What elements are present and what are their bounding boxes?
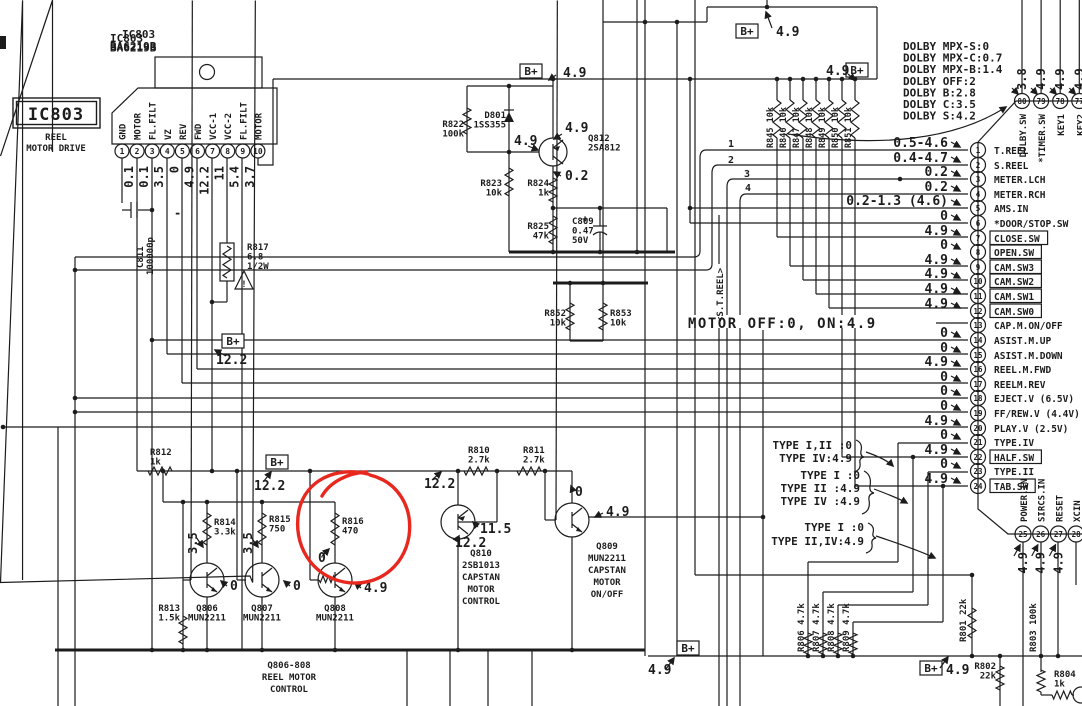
component-label: 1.5k: [158, 614, 180, 624]
ic-pin-number: 10: [973, 277, 983, 286]
junction-dot: [551, 206, 556, 211]
ic-pin-label: METER.LCH: [994, 175, 1046, 186]
pin-arrow: [951, 171, 960, 176]
component-label: Q809: [596, 542, 618, 552]
junction-dot: [788, 77, 793, 82]
ic-pin-number: 19: [973, 409, 983, 418]
junction-dot: [570, 648, 575, 653]
resistor-bank-label: R851 10k: [844, 107, 854, 148]
resistor-bank-label: R848 10k: [805, 107, 815, 148]
ic-pin-number: 15: [973, 351, 982, 360]
pin-voltage: 0: [940, 209, 948, 224]
transistor-pnp: [441, 505, 475, 539]
voltage-annotation: MOTOR OFF:0, ON:4.9: [688, 316, 877, 332]
voltage-annotation: 3.5: [186, 532, 200, 554]
ic-pin-label: REEL.M.FWD: [994, 365, 1051, 376]
junction-dot: [836, 654, 841, 659]
junction-dot: [456, 648, 461, 653]
bplus-label: B+: [270, 456, 284, 469]
resistor-bank-label: R845 10k: [766, 107, 776, 148]
ic803-pin-voltage: 0: [167, 166, 181, 173]
ic-pin-label: POWER.IN: [1020, 479, 1030, 522]
ic803-pin-name: REV: [179, 123, 189, 140]
ic803-pin-name: GND: [119, 123, 129, 140]
ic-pin-number: 9: [976, 263, 981, 272]
pin-voltage: 4.9: [1053, 68, 1067, 90]
ic-pin-number: 26: [1036, 530, 1046, 539]
component-label: CAPSTAN: [588, 566, 626, 576]
ic-pin-number: 24: [973, 482, 983, 491]
bplus-label: B+: [524, 65, 538, 78]
warning-mark: !: [241, 280, 246, 290]
voltage-annotation: TYPE I :0: [804, 521, 864, 534]
ic-pin-number: 23: [973, 467, 983, 476]
ic803-pin-voltage: 3.5: [152, 166, 166, 188]
ic-pin-number: 25: [1018, 530, 1027, 539]
junction-dot: [970, 654, 975, 659]
junction-dot: [210, 469, 215, 474]
ic803-pin-voltage: 0.1: [137, 166, 151, 188]
resistor: [1037, 670, 1045, 692]
pin-arrow: [951, 142, 960, 147]
component-label: MOTOR: [593, 578, 621, 588]
junction-dot: [970, 573, 975, 578]
ic-pin-label: REELM.REV: [994, 380, 1046, 391]
component-label: MUN2211: [243, 614, 281, 624]
schematic-canvas: IC803 BA6219B IC803 REEL MOTOR DRIVE +! …: [0, 0, 1082, 706]
ic803-pin-number: 10: [253, 147, 263, 156]
component-label: R812: [150, 448, 172, 458]
ic-pin-number: 17: [973, 380, 982, 389]
value-arrow: [284, 581, 290, 586]
pin-voltage: 4.9: [925, 282, 948, 297]
pin-arrow: [951, 244, 960, 249]
junction-dot: [821, 654, 826, 659]
ic803-box-ref: IC803: [28, 105, 84, 125]
pin-voltage: 4.9: [1034, 68, 1048, 90]
ic-pin-number: 21: [973, 438, 983, 447]
pin-arrow: [951, 376, 960, 381]
pin-voltage: 0: [940, 399, 948, 414]
ic803-function-1: REEL: [45, 133, 67, 143]
transistor-partial: [1073, 687, 1082, 703]
junction-dot: [761, 515, 766, 520]
bplus-label: B+: [226, 335, 240, 348]
voltage-annotation: 0: [293, 579, 301, 594]
junction-dot: [495, 469, 500, 474]
junction-dot: [598, 250, 603, 255]
ic-pin-label: KEY1: [1057, 114, 1067, 136]
ic-pin-label: DOLBY.SW: [1019, 113, 1029, 157]
junction-dot: [73, 268, 78, 273]
resistor: [331, 513, 339, 545]
component-label: R808 4.7k: [827, 603, 837, 652]
junction-dot: [507, 150, 512, 155]
voltage-annotation: 4.9: [648, 663, 671, 678]
voltage-annotation: 4.9: [565, 121, 588, 136]
pin-voltage: 4.9: [925, 472, 948, 487]
component-label: 10k: [486, 189, 503, 199]
value-arrow: [554, 134, 562, 139]
ic-pin-number: 14: [973, 336, 983, 345]
ic-pin-label: CAP.M.ON/OFF: [994, 321, 1063, 332]
component-label: R804: [1054, 670, 1076, 680]
voltage-annotation: 0: [575, 485, 583, 500]
component-label: 6.8: [247, 253, 263, 263]
ic-pin-number: 27: [1054, 530, 1063, 539]
pin-arrow: [951, 434, 960, 439]
pin-voltage: 4.9: [925, 224, 948, 239]
pin-arrow: [951, 230, 960, 235]
ic-pin-label: OPEN.SW: [994, 248, 1034, 259]
component-label: R813: [158, 604, 180, 614]
dolby-mode-line: DOLBY S:4.2: [903, 110, 976, 123]
ic803-pin-name: MOTOR: [134, 112, 144, 140]
junction-dot: [150, 648, 155, 653]
ic-pin-label: CAM.SW0: [994, 307, 1034, 318]
ic-pin-number: 80: [1017, 97, 1027, 106]
voltage-annotation: 4.9: [826, 64, 849, 79]
junction-dot: [568, 281, 573, 286]
resistor: [599, 303, 607, 330]
ic803-pin-number: 2: [135, 147, 140, 156]
ic-pin-label: SIRCS.IN: [1038, 479, 1048, 522]
component-label: R823: [480, 179, 502, 189]
pin-voltage: 0: [940, 326, 948, 341]
ic-pin-number: 13: [973, 321, 983, 330]
component-label: 0.47: [572, 227, 594, 237]
voltage-annotation: TYPE I,II :0: [773, 439, 852, 452]
voltage-annotation: 0: [318, 551, 326, 566]
junction-dot: [998, 654, 1003, 659]
component-label: C811: [136, 246, 146, 268]
ic-pin-label: *DOOR/STOP.SW: [994, 219, 1069, 230]
pin-arrow: [951, 463, 960, 468]
component-label: R825: [527, 222, 549, 232]
junction-dot: [643, 20, 648, 25]
component-label: MUN2211: [316, 614, 354, 624]
pin-voltage: 0: [940, 384, 948, 399]
resistor: [1052, 691, 1072, 699]
junction-dot: [210, 300, 215, 305]
component-label: 1SS355: [473, 121, 506, 131]
component-label: CONTROL: [462, 597, 501, 607]
pin-arrow: [951, 186, 960, 191]
pin-arrow: [951, 347, 960, 352]
bplus-label: B+: [850, 64, 864, 77]
junction-dot: [675, 20, 680, 25]
pin-arrow: [951, 200, 960, 205]
ic-pin-number: 78: [1056, 97, 1066, 106]
voltage-annotation: TYPE IV:4.9: [779, 452, 852, 465]
pin-arrow: [951, 390, 960, 395]
voltage-annotation: 4.9: [563, 66, 586, 81]
ic-pin-number: 79: [1037, 97, 1047, 106]
resistor-bank-label: R849 10k: [818, 107, 828, 148]
resistor: [258, 513, 266, 545]
ic-pin-number: 77: [1075, 97, 1082, 106]
voltage-annotation: -: [174, 206, 181, 220]
ic803-pin-number: 3: [150, 147, 155, 156]
component-label: 22k: [980, 672, 997, 682]
junction-dot: [814, 77, 819, 82]
ic-pin-number: 7: [976, 234, 981, 243]
junction-dot: [851, 654, 856, 659]
pin-arrow: [951, 361, 960, 366]
resistor: [463, 108, 471, 134]
junction-dot: [765, 5, 770, 10]
voltage-annotation: 4.9: [606, 505, 629, 520]
voltage-annotation: 4: [745, 183, 751, 194]
voltage-annotation: 12.2: [254, 479, 285, 494]
component-label: R803 100k: [1029, 603, 1039, 652]
ic-pin-number: 11: [973, 292, 983, 301]
resistor: [566, 303, 574, 330]
component-label: 2.7k: [468, 456, 490, 466]
voltage-annotation: 3: [744, 169, 750, 180]
transistor-pnp: [1, 0, 568, 166]
component-label: Q807: [251, 604, 273, 614]
component-label: ON/OFF: [591, 590, 624, 600]
junction-dot: [601, 281, 606, 286]
junction-dot: [1, 425, 6, 430]
ic803-function-2: MOTOR DRIVE: [26, 144, 86, 154]
junction-dot: [73, 410, 78, 415]
ic-pin-label: CLOSE.SW: [994, 234, 1040, 245]
component-label: D801: [484, 111, 506, 121]
voltage-annotation: 12.2: [455, 536, 486, 551]
voltage-annotation: 11.5: [480, 522, 511, 537]
pin-arrow: [951, 405, 960, 410]
pin-arrow: [951, 259, 960, 264]
component-label: Q812: [588, 134, 610, 144]
ic803-pin-name: VCC-1: [209, 113, 219, 140]
voltage-annotation: 2: [728, 155, 734, 166]
ic-pin-number: 4: [976, 190, 981, 199]
pin-voltage: 0: [940, 370, 948, 385]
component-label: R807 4.7k: [812, 603, 822, 652]
resistor: [549, 216, 557, 244]
resistor: [549, 178, 557, 202]
junction-dot: [911, 455, 916, 460]
ic-pin-label: EJECT.V (6.5V): [994, 394, 1074, 405]
junction-dot: [775, 77, 780, 82]
component-label: 100000p: [146, 236, 156, 275]
ic-pin-number: 1: [976, 146, 981, 155]
value-arrow: [766, 12, 772, 28]
pin-arrow: [951, 303, 960, 308]
ic-pin-number: 6: [976, 219, 981, 228]
voltage-annotation: TYPE II,IV:4.9: [771, 535, 864, 548]
junction-dot: [1056, 654, 1061, 659]
ic-pin-number: 20: [973, 424, 983, 433]
component-label: 1k: [1054, 680, 1065, 690]
ic-pin-label: XCIN: [1073, 500, 1082, 522]
resistor: [179, 616, 187, 644]
voltage-annotation: 0.2: [565, 169, 588, 184]
junction-dot: [73, 396, 78, 401]
ic803-pin-number: 5: [180, 147, 185, 156]
ic803-pin-number: 7: [210, 147, 215, 156]
ic-pin-number: 18: [973, 394, 983, 403]
component-label: MOTOR: [467, 585, 495, 595]
pin-voltage: 0: [940, 238, 948, 253]
resistor: [464, 467, 488, 475]
ic-pin-number: 12: [973, 307, 982, 316]
pin-arrow: [951, 332, 960, 337]
resistor: [505, 168, 513, 196]
pin-voltage: 0.5-4.6: [893, 136, 948, 151]
resistor-bank-label: R846 10k: [779, 107, 789, 148]
component-label: CAPSTAN: [462, 573, 500, 583]
component-label: R802: [974, 662, 996, 672]
voltage-annotation: 4.9: [946, 663, 969, 678]
ic-pin-label: HALF.SW: [994, 453, 1034, 464]
ic803-pin-number: 1: [120, 147, 125, 156]
pin-arrow: [951, 420, 960, 425]
junction-dot: [688, 206, 693, 211]
pin-voltage: 4.9: [1016, 552, 1030, 574]
bplus-label: B+: [924, 662, 938, 675]
junction-dot: [551, 250, 556, 255]
ic-pin-label: CAM.SW2: [994, 277, 1034, 288]
bplus-label: B+: [740, 25, 754, 38]
ic803-pin-number: 9: [240, 147, 245, 156]
pin-voltage: 0.2-1.3 (4.6): [846, 194, 948, 209]
component-label: 1k: [150, 458, 161, 468]
junction-dot: [235, 469, 240, 474]
junction-dot: [150, 208, 155, 213]
ic-pin-label: CAM.SW3: [994, 263, 1034, 274]
voltage-annotation: 0: [230, 579, 238, 594]
component-label: MUN2211: [188, 614, 226, 624]
ic-pin-label: *TIMER.SW: [1038, 113, 1048, 162]
pin-arrow: [951, 157, 960, 162]
ic-pin-label: RESET: [1055, 494, 1065, 522]
component-label: 3.3k: [214, 528, 236, 538]
ic-pin-label: METER.RCH: [994, 190, 1046, 201]
ic803-pin-name: MOTOR: [254, 112, 264, 140]
component-label: R852: [544, 309, 566, 319]
voltage-annotation: 3.5: [241, 532, 255, 554]
ic-pin-label: TYPE.II: [994, 467, 1034, 478]
voltage-annotation: 1: [728, 139, 734, 150]
ic-pin-number: 22: [973, 453, 982, 462]
voltage-annotation: 12.2: [424, 477, 455, 492]
pin-arrow: [951, 288, 960, 293]
resistor: [203, 513, 211, 545]
junction-dot: [205, 500, 210, 505]
ic-pin-label: CAM.SW1: [994, 292, 1034, 303]
resistor: [996, 666, 1004, 690]
junction-dot: [260, 500, 265, 505]
pin-voltage: 4.9: [1051, 552, 1065, 574]
ic-pin-label: TYPE.IV: [994, 438, 1034, 449]
pin-arrow: [951, 478, 960, 483]
component-label: MUN2211: [588, 554, 626, 564]
junction-dot: [150, 338, 155, 343]
component-label: R816: [342, 517, 364, 527]
component-label: Q806-808: [267, 661, 310, 671]
junction-dot: [801, 77, 806, 82]
component-label: Q808: [324, 604, 346, 614]
ic-pin-label: FF/REW.V (4.4V): [994, 409, 1080, 420]
junction-dot: [308, 469, 313, 474]
ic803-pin-name: VZ: [164, 129, 174, 140]
ic803-pin-voltage: 12.2: [198, 166, 212, 195]
pin-voltage: 4.9: [1072, 68, 1082, 90]
junction-dot: [507, 84, 512, 89]
junction-dot: [181, 500, 186, 505]
component-label: 470: [342, 527, 358, 537]
ic803-pin-number: 6: [195, 147, 200, 156]
component-label: 1k: [538, 189, 549, 199]
pin-voltage: 4.9: [925, 443, 948, 458]
pin-voltage: 0: [940, 428, 948, 443]
type-annotation-braces: [854, 440, 935, 558]
ic-pin-number: 8: [976, 248, 981, 257]
voltage-annotation: 4.9: [514, 134, 537, 149]
bplus-label: B+: [681, 642, 695, 655]
ic-pin-label: ASIST.M.DOWN: [994, 351, 1063, 362]
pin-voltage: 4.9: [925, 253, 948, 268]
pin-arrow: [951, 273, 960, 278]
resistor: [223, 246, 231, 278]
junction-dot: [598, 206, 603, 211]
component-label: R814: [214, 518, 236, 528]
component-label: <S.T.REEL>: [716, 267, 726, 322]
component-label: BA6219B: [110, 42, 157, 55]
pin-voltage: 0: [940, 341, 948, 356]
ic-pin-number: 28: [1072, 530, 1082, 539]
ic803-pin-voltage: 3.7: [243, 166, 257, 188]
junction-dot: [688, 77, 693, 82]
ic803-pin-voltage: 11: [213, 166, 227, 180]
pin-voltage: 0.2: [925, 180, 948, 195]
resistor-bank-label: R850 10k: [831, 107, 841, 148]
pin-voltage: 0: [940, 457, 948, 472]
voltage-annotation: TYPE II :4.9: [781, 482, 860, 495]
component-label: C809: [572, 217, 594, 227]
component-label: R801 22k: [959, 598, 969, 642]
resistor: [517, 467, 541, 475]
junction-dot: [635, 250, 640, 255]
component-label: R824: [527, 179, 549, 189]
ic803-pin-name: FL.FILT: [149, 101, 159, 140]
ic-pin-number: 16: [973, 365, 983, 374]
pin-arrow: [951, 449, 960, 454]
component-label: 50V: [572, 236, 589, 246]
junction-dot: [1039, 654, 1044, 659]
pin-voltage: 4.9: [925, 414, 948, 429]
ic-pin-label: AMS.IN: [994, 204, 1029, 215]
component-label: 47k: [533, 232, 550, 242]
pin-voltage: 4.9: [925, 355, 948, 370]
voltage-annotation: TYPE I :0: [800, 469, 860, 482]
ic-pin-number: 3: [976, 175, 981, 184]
ic803-pin-voltage: 5.4: [228, 166, 242, 188]
component-label: CONTROL: [270, 685, 309, 695]
pin-voltage: 0.2: [925, 165, 948, 180]
ic803-pin-name: FWD: [194, 123, 204, 140]
ic803-pin-voltage: 4.9: [182, 166, 196, 188]
ic-pin-label: PLAY.V (2.5V): [994, 424, 1068, 435]
component-label: 2SA812: [588, 144, 621, 154]
ic-pin-number: 2: [976, 161, 981, 170]
pin-voltage: 4.9: [1034, 552, 1048, 574]
component-label: 100k: [442, 130, 464, 140]
component-label: R809 4.7k: [842, 603, 852, 652]
